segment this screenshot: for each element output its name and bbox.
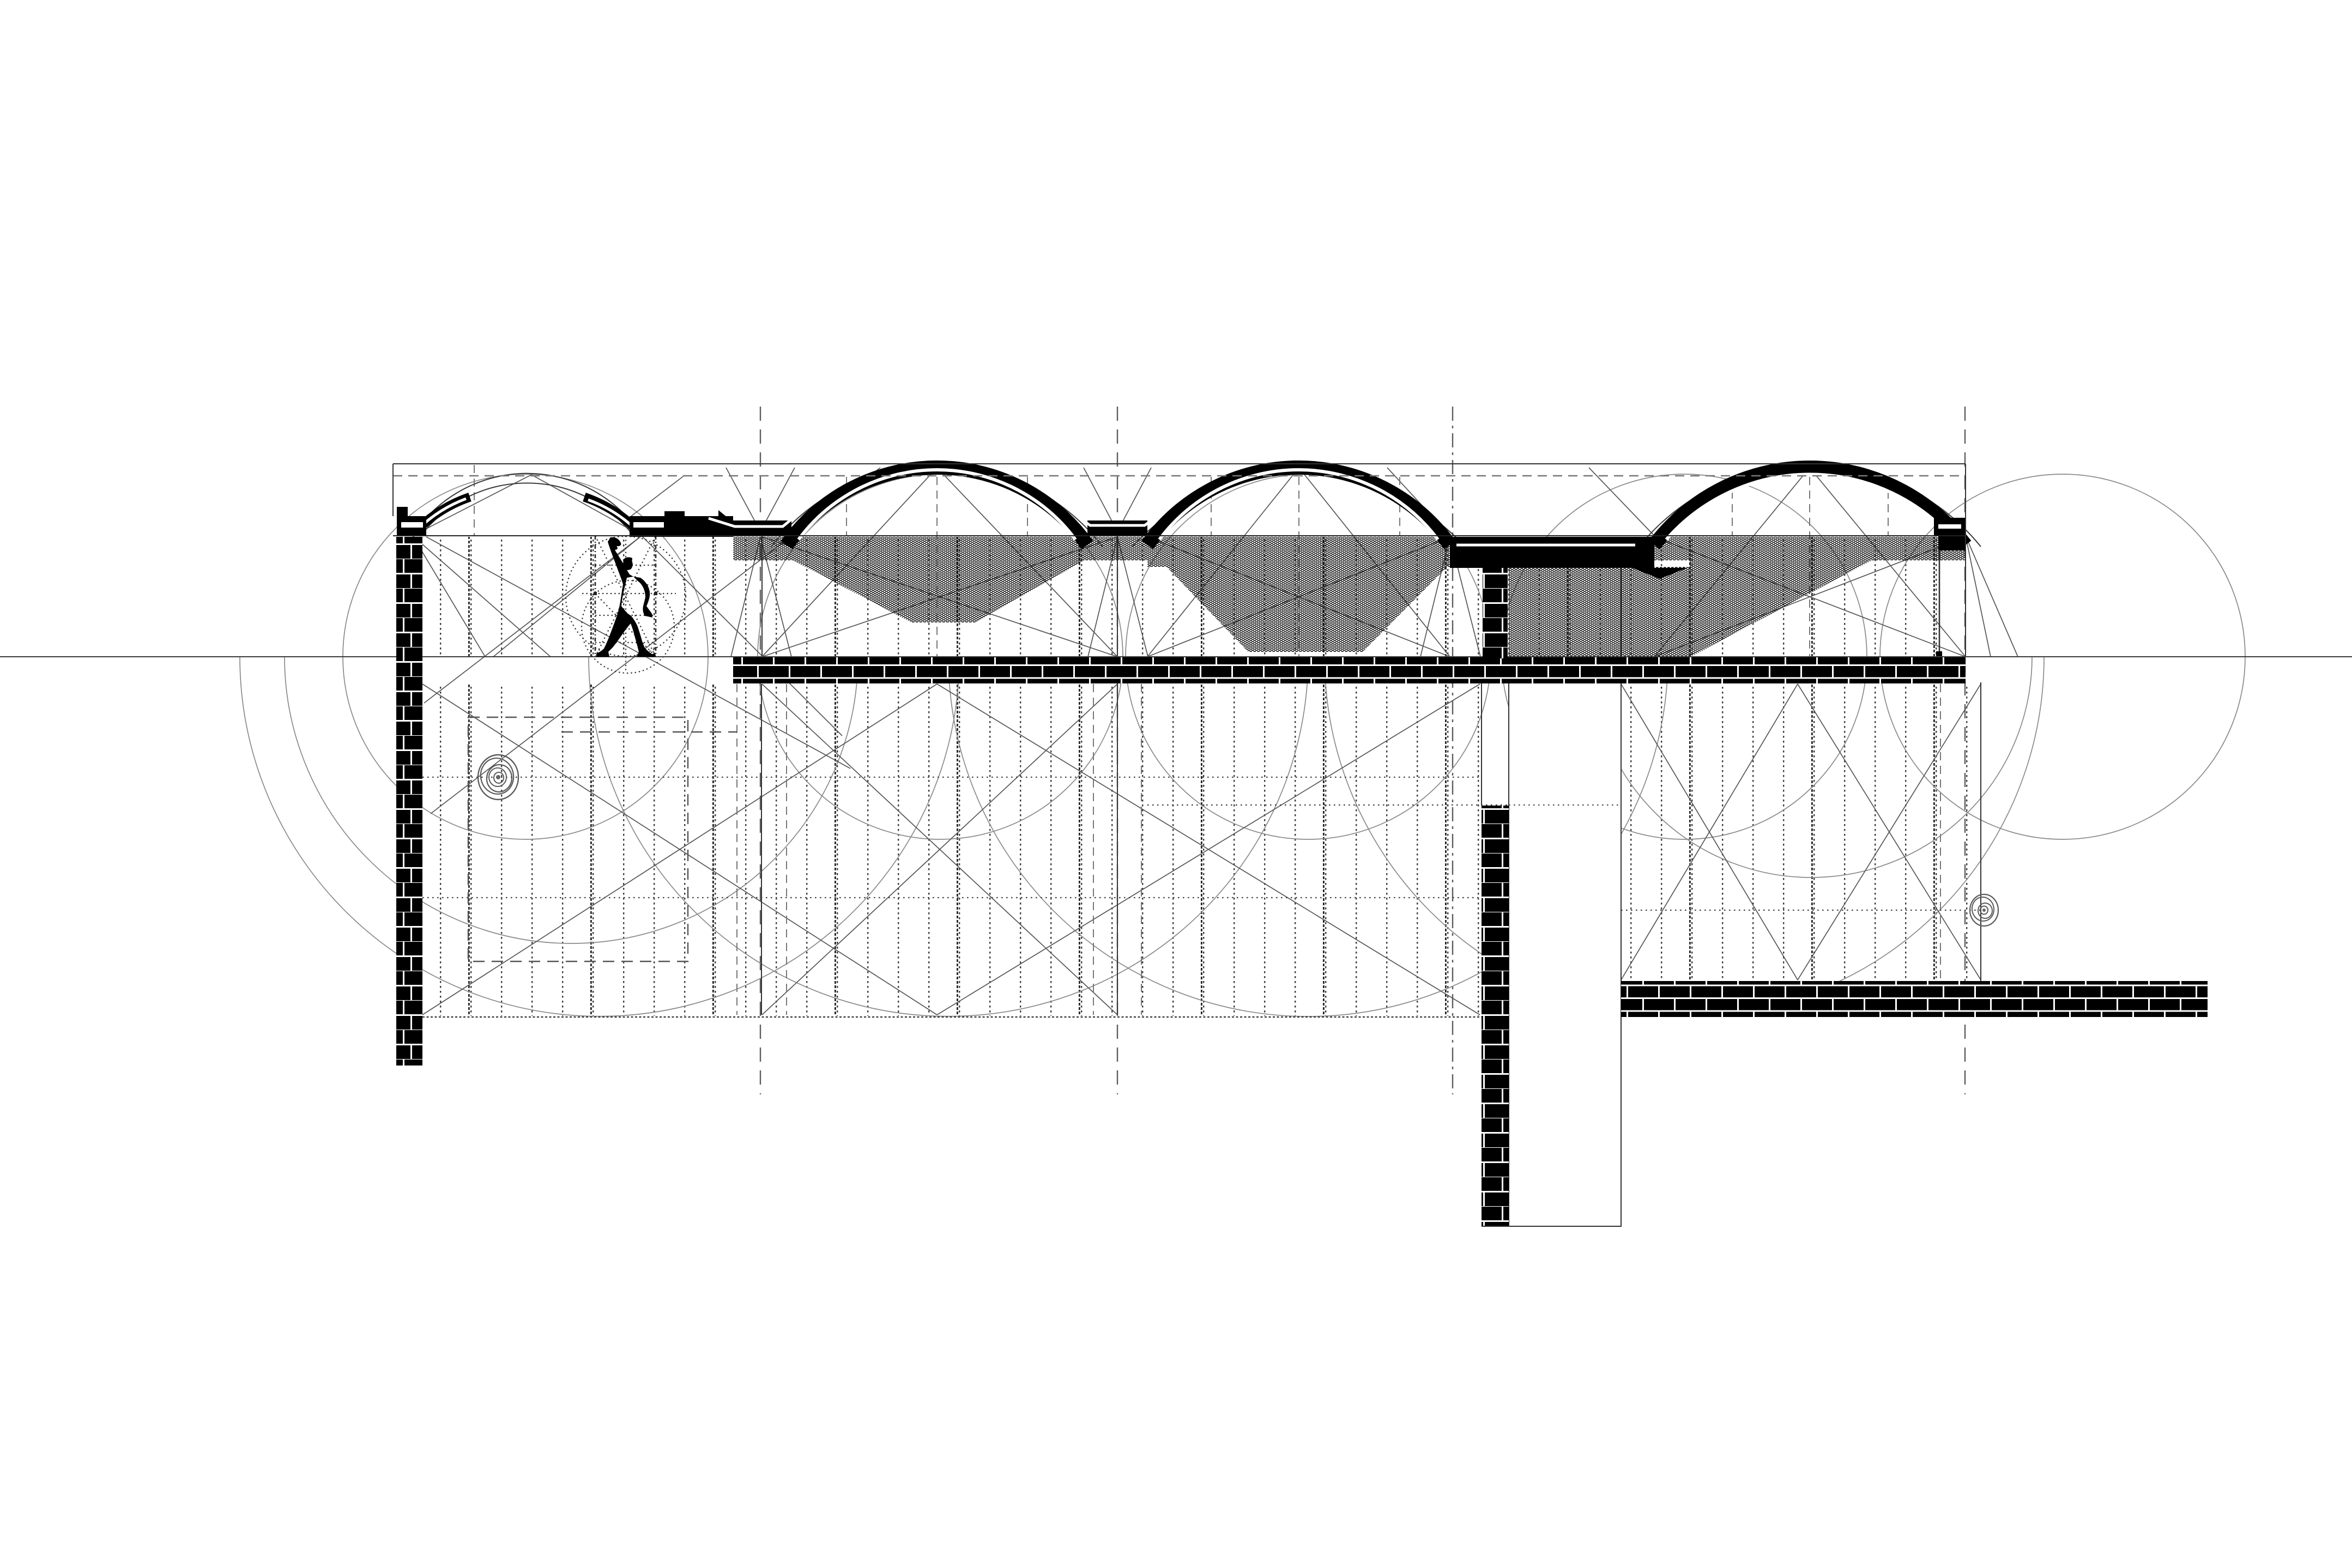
section-drawing-svg [0,0,2352,1568]
drawing-sheet [0,0,2352,1568]
upper-pier [1483,568,1508,658]
left-brick-wall [396,537,422,1065]
wing-beam [1621,981,2208,1017]
lower-pier [1482,806,1509,1226]
main-beam [733,657,1966,683]
shaft-outline [1509,682,1621,1226]
